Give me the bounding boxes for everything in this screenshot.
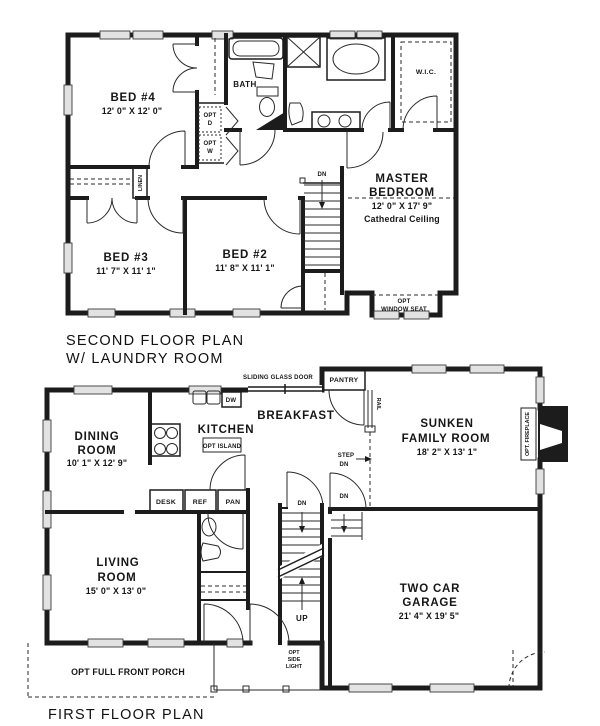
ref-label: REF [193,499,208,506]
dining-dims: 10' 1" X 12' 9" [67,458,128,468]
breakfast-label: BREAKFAST [257,410,334,422]
opt-side-light-label-3: LIGHT [286,664,303,670]
bed4-dims: 12' 0" X 12' 0" [102,106,163,116]
desk-label: DESK [156,499,176,506]
first-floor-doors [204,455,545,688]
wic-label: W.I.C. [416,69,436,76]
dishwasher-label: DW [226,398,237,404]
stairs-down-garage-label: DN [339,494,348,500]
opt-dryer-label-2: D [208,121,213,127]
first-floor-title: FIRST FLOOR PLAN [48,707,205,723]
floor-plan-drawing: BED #4 12' 0" X 12' 0" BATH OPT D OPT W … [0,0,600,726]
powder-room-fixtures [201,518,246,592]
garage-label-1: TWO CAR [400,583,461,595]
kitchen-fixtures [150,391,248,512]
bed3-label: BED #3 [103,252,148,264]
dining-label-2: ROOM [78,445,117,457]
garage-dims: 21' 4" X 19' 5" [399,611,460,621]
pantry-label: PANTRY [330,377,359,384]
kitchen-label: KITCHEN [198,424,255,436]
wic-shelving [401,42,451,122]
first-floor-plan: SLIDING GLASS DOOR PANTRY DW BREAKFAST K… [28,365,568,723]
opt-porch-label: OPT FULL FRONT PORCH [71,667,185,677]
pan-label: PAN [226,499,241,506]
step-dn-label-1: STEP [338,453,354,459]
master-bedroom-label-2: BEDROOM [369,187,435,199]
dining-label-1: DINING [74,431,119,443]
bed3-dims: 11' 7" X 11' 1" [96,266,156,276]
opt-side-light-label-1: OPT [288,650,300,656]
stairs-down-basement-label: DN [297,501,306,507]
bed3-closet-shelf [70,179,131,184]
stairs-down-label-2f: DN [317,172,326,178]
stairs-up-label: UP [296,614,308,623]
opt-window-seat-label-2: WINDOW SEAT [381,307,427,313]
family-label-1: SUNKEN [420,418,473,430]
opt-washer-label-2: W [207,149,213,155]
opt-window-seat-label-1: OPT [398,299,411,305]
master-bedroom-label-1: MASTER [375,173,428,185]
second-floor-title-2: W/ LAUNDRY ROOM [66,351,224,367]
bed2-dims: 11' 8" X 11' 1" [215,263,275,273]
master-bedroom-dims: 12' 0" X 17' 9" [372,201,433,211]
linen-label: LINEN [138,175,144,191]
opt-washer-label-1: OPT [204,141,217,147]
master-bath-fixtures [287,37,385,130]
bath-label: BATH [233,80,257,89]
sliding-glass-door-label: SLIDING GLASS DOOR [243,375,313,381]
family-dims: 18' 2" X 13' 1" [417,447,478,457]
opt-fireplace-label: OPT. FIREPLACE [525,412,531,456]
living-dims: 15' 0" X 13' 0" [86,586,147,596]
opt-side-light-label-2: SIDE [288,657,301,663]
rail-label: RAIL [375,398,381,411]
hall-bath-fixtures [229,38,283,117]
rail-and-step [356,390,375,507]
garage-label-2: GARAGE [402,597,457,609]
step-dn-label-2: DN [339,462,348,468]
second-floor-stairs [300,178,342,265]
opt-dryer-label-1: OPT [204,113,217,119]
second-floor-plan: BED #4 12' 0" X 12' 0" BATH OPT D OPT W … [64,31,456,367]
living-label-2: ROOM [98,572,137,584]
cathedral-ceiling-label: Cathedral Ceiling [364,214,440,224]
opt-island-label: OPT ISLAND [203,444,242,450]
second-floor-title-1: SECOND FLOOR PLAN [66,333,244,349]
living-label-1: LIVING [96,557,139,569]
family-label-2: FAMILY ROOM [402,433,491,445]
bed2-label: BED #2 [222,249,267,261]
bed4-label: BED #4 [110,92,155,104]
sliding-glass-door [248,384,322,394]
floor-plan-page: BED #4 12' 0" X 12' 0" BATH OPT D OPT W … [0,0,600,726]
